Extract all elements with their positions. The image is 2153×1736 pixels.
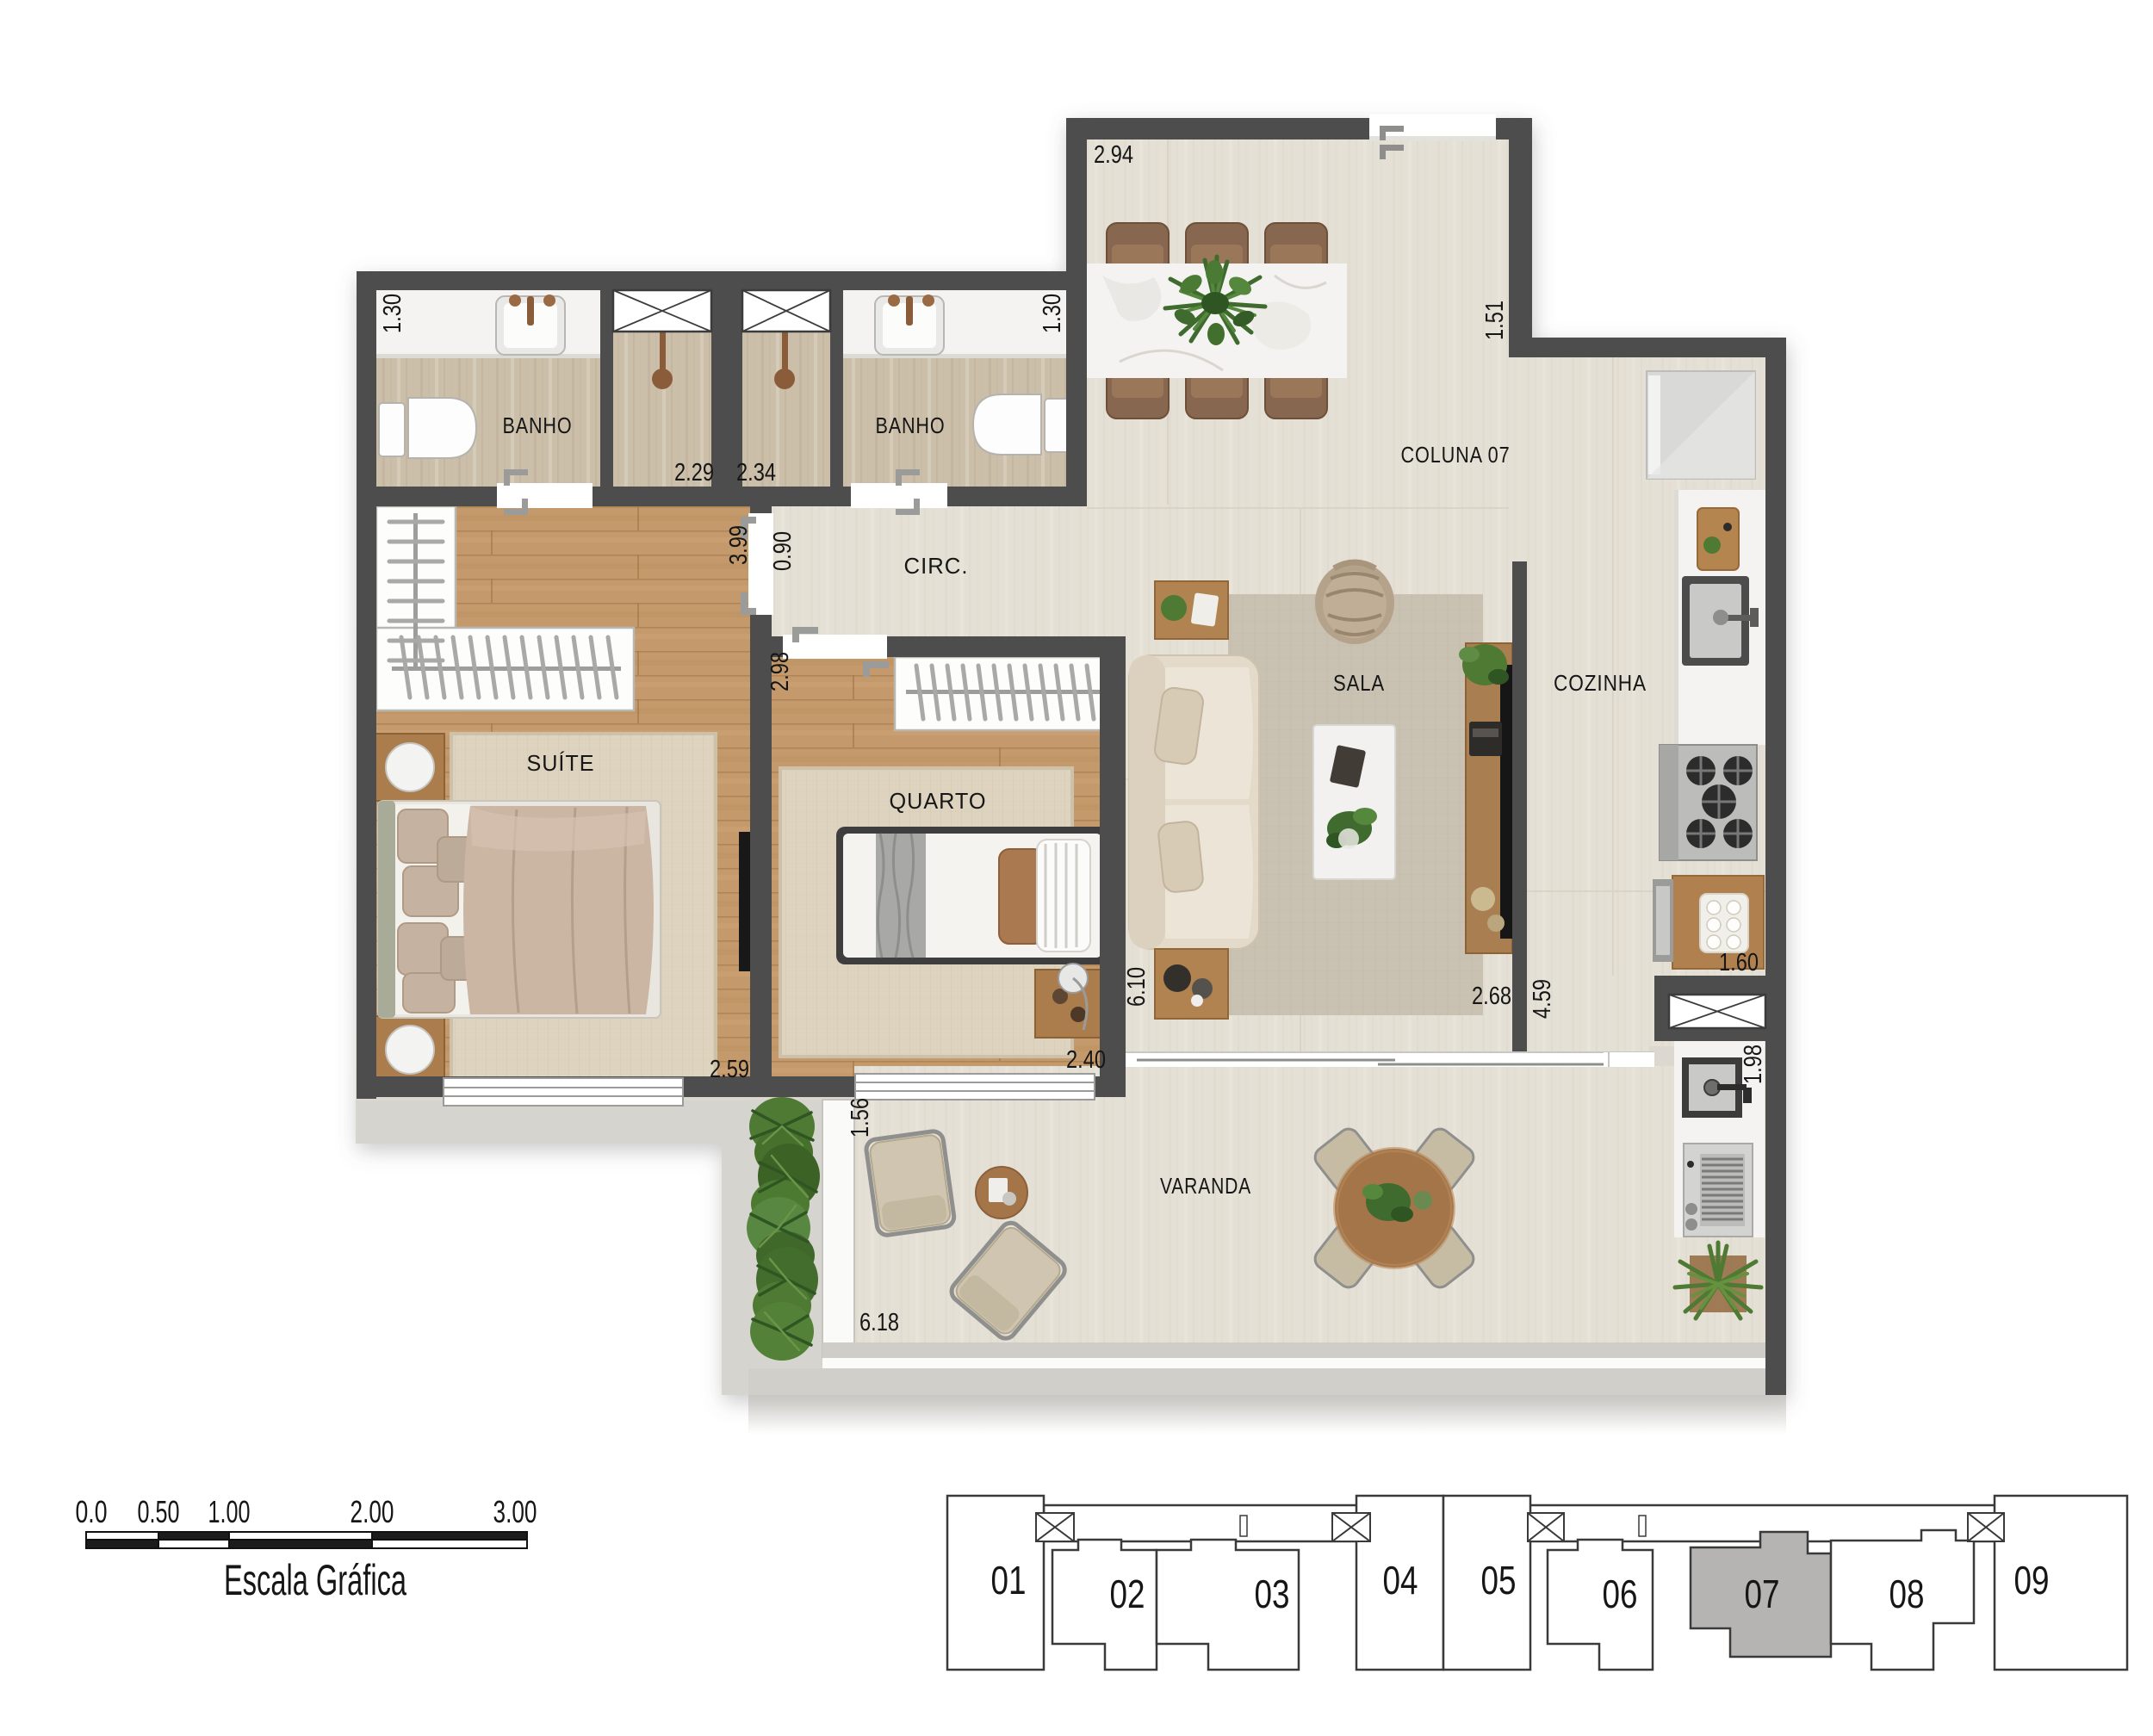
svg-text:1.00: 1.00 — [208, 1494, 251, 1529]
svg-text:2.00: 2.00 — [351, 1494, 394, 1529]
svg-text:6.18: 6.18 — [859, 1309, 899, 1336]
svg-text:08: 08 — [1889, 1572, 1925, 1616]
svg-text:03: 03 — [1255, 1572, 1290, 1616]
svg-text:2.94: 2.94 — [1094, 141, 1133, 169]
svg-text:SALA: SALA — [1333, 670, 1385, 696]
svg-text:1.51: 1.51 — [1481, 301, 1509, 340]
svg-text:3.00: 3.00 — [493, 1494, 537, 1529]
svg-text:09: 09 — [2014, 1558, 2050, 1603]
svg-text:0.0: 0.0 — [76, 1494, 108, 1529]
svg-text:1.30: 1.30 — [379, 294, 406, 333]
svg-text:2.68: 2.68 — [1472, 983, 1511, 1010]
svg-text:1.30: 1.30 — [1039, 294, 1066, 333]
svg-text:SUÍTE: SUÍTE — [527, 750, 595, 776]
svg-text:BANHO: BANHO — [503, 412, 573, 438]
svg-text:06: 06 — [1603, 1572, 1638, 1616]
svg-text:VARANDA: VARANDA — [1160, 1173, 1251, 1199]
svg-text:2.59: 2.59 — [710, 1056, 749, 1083]
svg-text:3.99: 3.99 — [725, 525, 753, 565]
svg-text:4.59: 4.59 — [1529, 979, 1556, 1019]
svg-text:2.40: 2.40 — [1066, 1046, 1106, 1074]
svg-text:1.98: 1.98 — [1740, 1045, 1767, 1084]
svg-text:01: 01 — [991, 1558, 1027, 1603]
svg-text:2.29: 2.29 — [674, 459, 714, 487]
svg-text:Escala Gráfica: Escala Gráfica — [224, 1556, 406, 1604]
svg-text:COZINHA: COZINHA — [1554, 670, 1647, 696]
svg-text:05: 05 — [1481, 1558, 1517, 1603]
svg-text:0.90: 0.90 — [769, 531, 797, 571]
svg-text:0.50: 0.50 — [138, 1494, 180, 1529]
svg-text:2.34: 2.34 — [736, 459, 776, 487]
svg-text:COLUNA 07: COLUNA 07 — [1401, 442, 1511, 468]
svg-text:04: 04 — [1383, 1558, 1418, 1603]
svg-text:1.60: 1.60 — [1719, 949, 1759, 976]
svg-text:2.98: 2.98 — [766, 652, 794, 691]
svg-text:1.56: 1.56 — [847, 1098, 874, 1138]
svg-text:02: 02 — [1110, 1572, 1145, 1616]
svg-text:CIRC.: CIRC. — [904, 553, 969, 579]
svg-text:07: 07 — [1745, 1572, 1780, 1616]
svg-text:QUARTO: QUARTO — [890, 788, 987, 814]
svg-text:6.10: 6.10 — [1123, 967, 1151, 1007]
svg-text:BANHO: BANHO — [876, 412, 946, 438]
